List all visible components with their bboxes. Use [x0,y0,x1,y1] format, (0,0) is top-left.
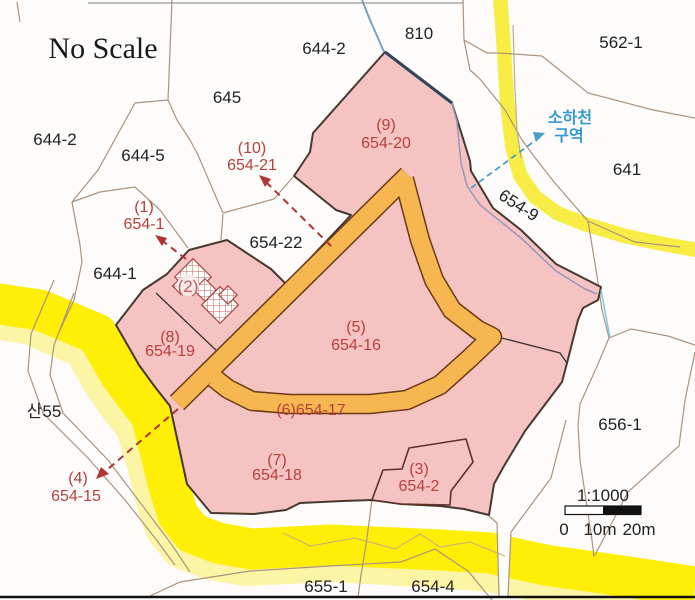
svg-text:644-5: 644-5 [121,146,164,165]
svg-text:654-1: 654-1 [124,216,165,233]
svg-text:654-21: 654-21 [227,157,277,174]
svg-text:(1): (1) [134,199,154,216]
svg-text:소하천: 소하천 [548,109,592,127]
svg-text:654-22: 654-22 [250,233,303,252]
svg-text:641: 641 [613,160,641,179]
svg-text:654-19: 654-19 [145,343,195,360]
svg-text:(5): (5) [346,319,366,336]
svg-text:산55: 산55 [27,402,62,421]
svg-text:654-20: 654-20 [361,135,411,152]
svg-text:(9): (9) [376,117,396,134]
svg-text:654-15: 654-15 [51,488,101,505]
svg-text:644-2: 644-2 [33,130,76,149]
svg-text:1:1000: 1:1000 [577,486,629,505]
svg-text:810: 810 [405,24,433,43]
svg-text:562-1: 562-1 [599,33,642,52]
svg-text:654-16: 654-16 [331,337,381,354]
svg-text:0: 0 [559,520,568,539]
svg-text:644-1: 644-1 [93,264,136,283]
svg-text:(4): (4) [68,470,88,487]
svg-text:구역: 구역 [554,127,583,145]
svg-text:(2): (2) [178,277,199,296]
svg-text:656-1: 656-1 [598,415,641,434]
svg-text:(6)654-17: (6)654-17 [276,402,345,419]
svg-text:654-4: 654-4 [411,577,454,596]
svg-text:20m: 20m [622,520,655,539]
svg-text:645: 645 [213,88,241,107]
svg-text:No Scale: No Scale [48,32,157,65]
svg-text:(10): (10) [238,140,266,157]
svg-text:10m: 10m [583,520,616,539]
svg-text:655-1: 655-1 [304,577,347,596]
svg-text:654-2: 654-2 [399,478,440,495]
svg-text:(3): (3) [409,461,429,478]
svg-text:654-18: 654-18 [252,467,302,484]
svg-text:644-2: 644-2 [302,39,345,58]
